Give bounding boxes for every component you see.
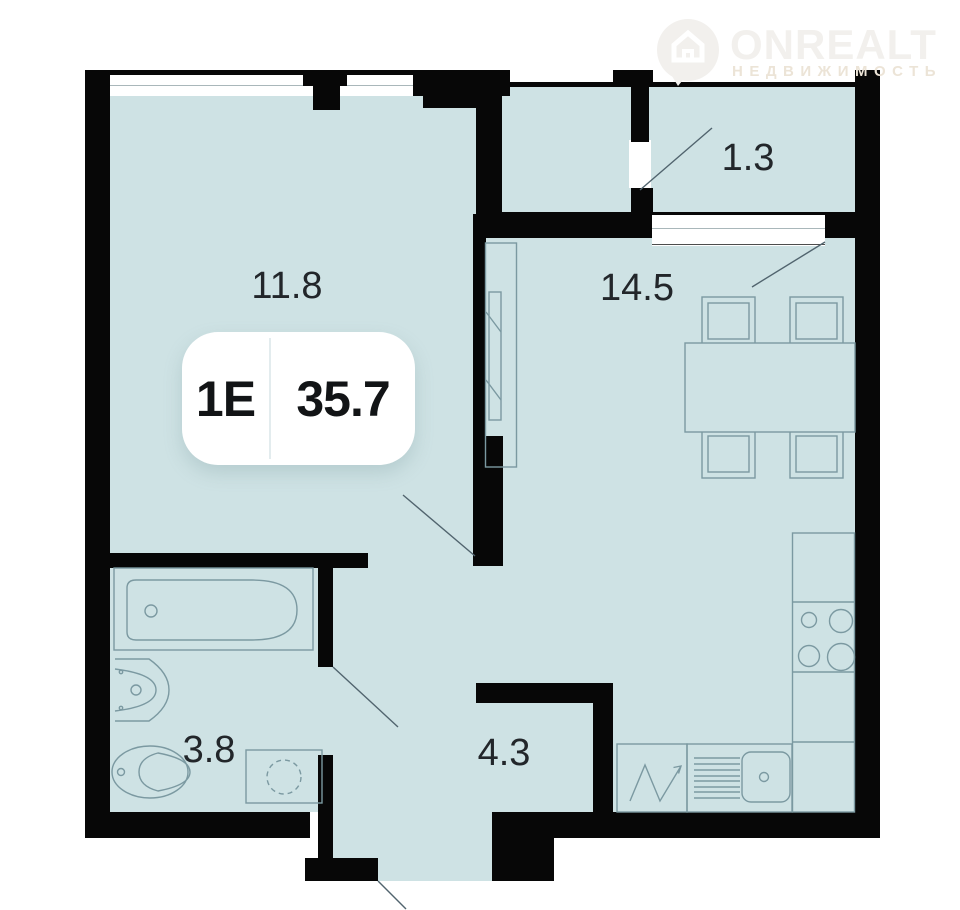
door-swing-icon <box>333 128 825 909</box>
brand-subtitle: НЕДВИЖИМОСТЬ <box>732 64 942 79</box>
washing-machine-icon <box>617 744 687 812</box>
floorplan-canvas: 11.8 14.5 1.3 3.8 4.3 1Е 35.7 ONREALT НЕ… <box>0 0 960 910</box>
furniture-layer <box>0 0 960 910</box>
washbasin-icon <box>115 659 169 721</box>
unit-type-label: 1Е <box>182 332 269 465</box>
brand-name: ONREALT <box>730 24 937 66</box>
stove-icon <box>793 533 855 812</box>
unit-info-badge: 1Е 35.7 <box>182 332 415 465</box>
house-pin-icon <box>650 14 726 90</box>
wardrobe-icon <box>486 243 517 467</box>
bathtub-icon <box>114 568 313 650</box>
sink-icon <box>687 744 792 812</box>
washer-dryer-icon <box>246 750 322 803</box>
dining-table-icon <box>685 297 855 478</box>
brand-logo: ONREALT НЕДВИЖИМОСТЬ <box>650 14 950 90</box>
unit-total-area: 35.7 <box>271 332 415 465</box>
toilet-icon <box>112 746 190 798</box>
